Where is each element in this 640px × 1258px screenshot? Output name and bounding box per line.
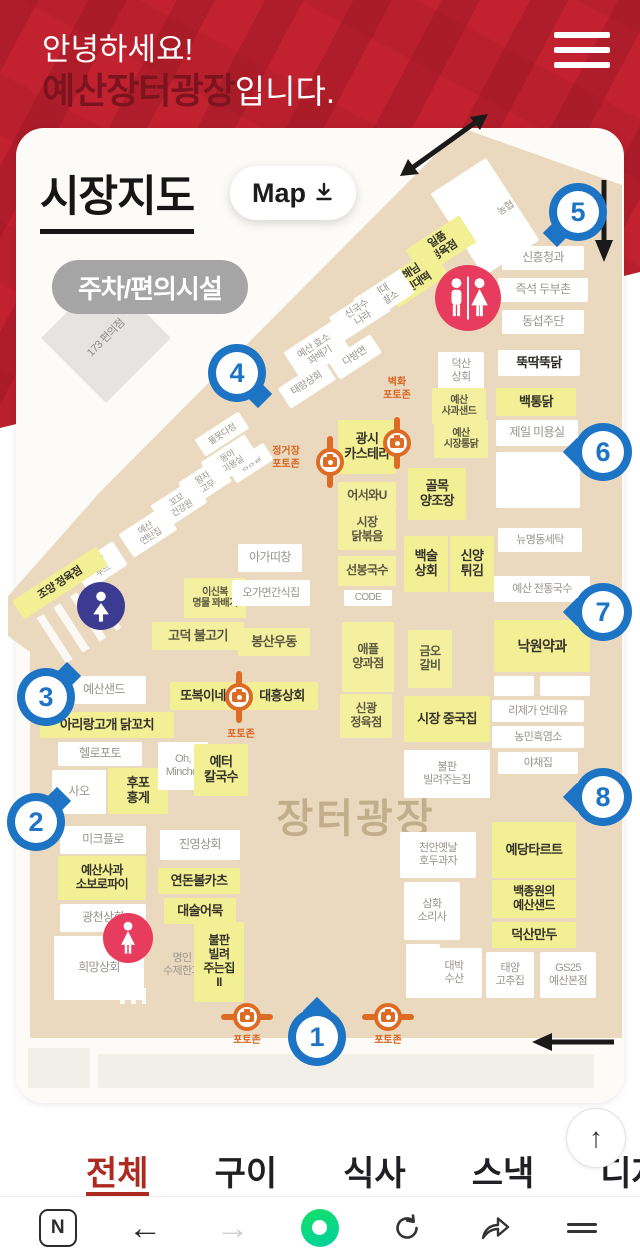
refresh-icon (391, 1212, 423, 1244)
scroll-to-top-button[interactable]: ↑ (566, 1108, 626, 1168)
restroom-icon (435, 265, 501, 331)
map-exit-arrow-left-icon (524, 1030, 619, 1059)
map-stall: 예터 칼국수 (194, 744, 248, 796)
map-marker-8: 8 (574, 768, 632, 826)
map-block (28, 1048, 90, 1088)
map-download-button[interactable]: Map (230, 166, 356, 220)
map-stall: 신양 튀김 (450, 536, 494, 592)
up-arrow-icon: ↑ (589, 1122, 603, 1154)
map-stall: 미크플로 (60, 826, 146, 854)
map-stall: 불판 빌려주는집 (404, 750, 490, 798)
photozone-label: 벽화 포토존 (362, 377, 432, 402)
map-stall: 뚝딱뚝닭 (498, 350, 580, 376)
map-stall: 덕산 상회 (438, 352, 484, 390)
map-marker-7: 7 (574, 583, 632, 641)
toolbar-menu-icon[interactable] (553, 1202, 611, 1254)
page: 안녕하세요! 예산장터광장입니다. 시장지도 Map 주차/편의시설 장터광장 … (0, 0, 640, 1258)
map-block (494, 676, 534, 696)
tab-all[interactable]: 전체 (86, 1140, 149, 1196)
map-stall: 예당타르트 (492, 822, 576, 878)
map-stall: 삼화 소리사 (404, 882, 460, 940)
photozone-label: 포토존 (353, 1035, 423, 1048)
map-block (540, 676, 590, 696)
map-stall: 어서와U (338, 482, 396, 510)
map-stall: 봉산우동 (238, 628, 310, 656)
map-stall: 예산사과 소보로파이 (58, 856, 146, 900)
map-stall: 예산 시장통닭 (434, 420, 488, 458)
share-button[interactable] (466, 1202, 524, 1254)
green-dot-icon (301, 1209, 339, 1247)
map-stall: 농민흑염소 (492, 726, 584, 748)
map-stall: 헬로포토 (58, 742, 142, 766)
map-stall: 백종원의 예산샌드 (492, 880, 576, 918)
map-stall: 대술어묵 (164, 898, 236, 924)
map-stall: 대박 수산 (426, 948, 482, 998)
map-marker-5: 5 (549, 183, 607, 241)
map-stall: 백통닭 (496, 388, 576, 416)
tab-snack[interactable]: 스낵 (472, 1140, 535, 1196)
map-stall: CODE (344, 590, 392, 606)
photozone-label: 정거장 포토존 (251, 446, 321, 471)
map-stall: 뉴명동세탁 (498, 528, 582, 552)
map-stall: 신광 정육점 (340, 694, 392, 738)
map-marker-2: 2 (7, 793, 65, 851)
map-stall: 선봉국수 (338, 556, 396, 586)
map-stall: 천안옛날 호두과자 (400, 832, 476, 878)
back-arrow-icon: ← (128, 1211, 162, 1245)
map-stall: 야채집 (498, 752, 578, 774)
map-marker-3: 3 (17, 668, 75, 726)
share-icon (479, 1212, 511, 1244)
forward-button[interactable]: → (204, 1202, 262, 1254)
map-button-label: Map (252, 178, 306, 209)
photozone-label: 포토존 (212, 1035, 282, 1048)
map-stall: 예산 사과샌드 (432, 388, 486, 424)
map-stall: 태양 고추집 (486, 952, 534, 998)
map-section-title: 시장지도 (40, 162, 194, 234)
forward-arrow-icon: → (216, 1211, 250, 1245)
refresh-button[interactable] (378, 1202, 436, 1254)
map-marker-6: 6 (574, 423, 632, 481)
map-block (496, 452, 580, 508)
map-exit-arrow-northwest-icon (392, 112, 492, 187)
map-stall: 리제가 언데유 (492, 700, 584, 722)
map-stall: 금오 갈비 (408, 630, 452, 688)
tab-meal[interactable]: 식사 (343, 1140, 406, 1196)
map-stall: 즉석 두부촌 (498, 278, 588, 302)
browser-toolbar: N ← → (0, 1196, 640, 1258)
back-button[interactable]: ← (116, 1202, 174, 1254)
tab-grill[interactable]: 구이 (215, 1140, 278, 1196)
map-stall: 신흥청과 (502, 246, 584, 270)
map-stall: 덕산만두 (492, 922, 576, 948)
map-stall: 애플 양과점 (342, 622, 394, 692)
map-stall: 아가띠창 (238, 544, 302, 572)
map-stall: 동섭주단 (502, 310, 584, 334)
map-marker-4: 4 (208, 344, 266, 402)
map-stall: 골목 양조장 (408, 468, 466, 520)
photozone-label: 포토존 (206, 729, 276, 742)
map-stall: 제일 미용실 (496, 420, 578, 446)
map-stall: 시장 중국집 (404, 696, 490, 742)
map-stall: 백술 상회 (404, 536, 448, 592)
male-icon (77, 582, 125, 630)
map-marker-1: 1 (288, 1008, 346, 1066)
naver-logo-icon: N (39, 1209, 77, 1247)
parking-facility-badge[interactable]: 주차/편의시설 (52, 260, 248, 314)
map-block (98, 1054, 594, 1088)
map-stall: 진영상회 (160, 830, 240, 860)
female-icon (103, 913, 153, 963)
category-tab-bar: 전체 구이 식사 스낵 디저트 (0, 1140, 640, 1196)
naver-green-dot-button[interactable] (291, 1202, 349, 1254)
map-stall: 연돈볼카츠 (158, 868, 240, 894)
naver-home-button[interactable]: N (29, 1202, 87, 1254)
map-stall: 불판 빌려 주는집 II (194, 922, 244, 1002)
map-stall: 시장 닭볶음 (338, 510, 396, 550)
map-stall: 고덕 불고기 (152, 622, 244, 650)
map-stall: GS25 예산본점 (540, 952, 596, 998)
download-icon (314, 178, 334, 209)
map-stall: 오가면간식집 (232, 580, 310, 606)
map-stall: 대흥상회 (246, 682, 318, 710)
